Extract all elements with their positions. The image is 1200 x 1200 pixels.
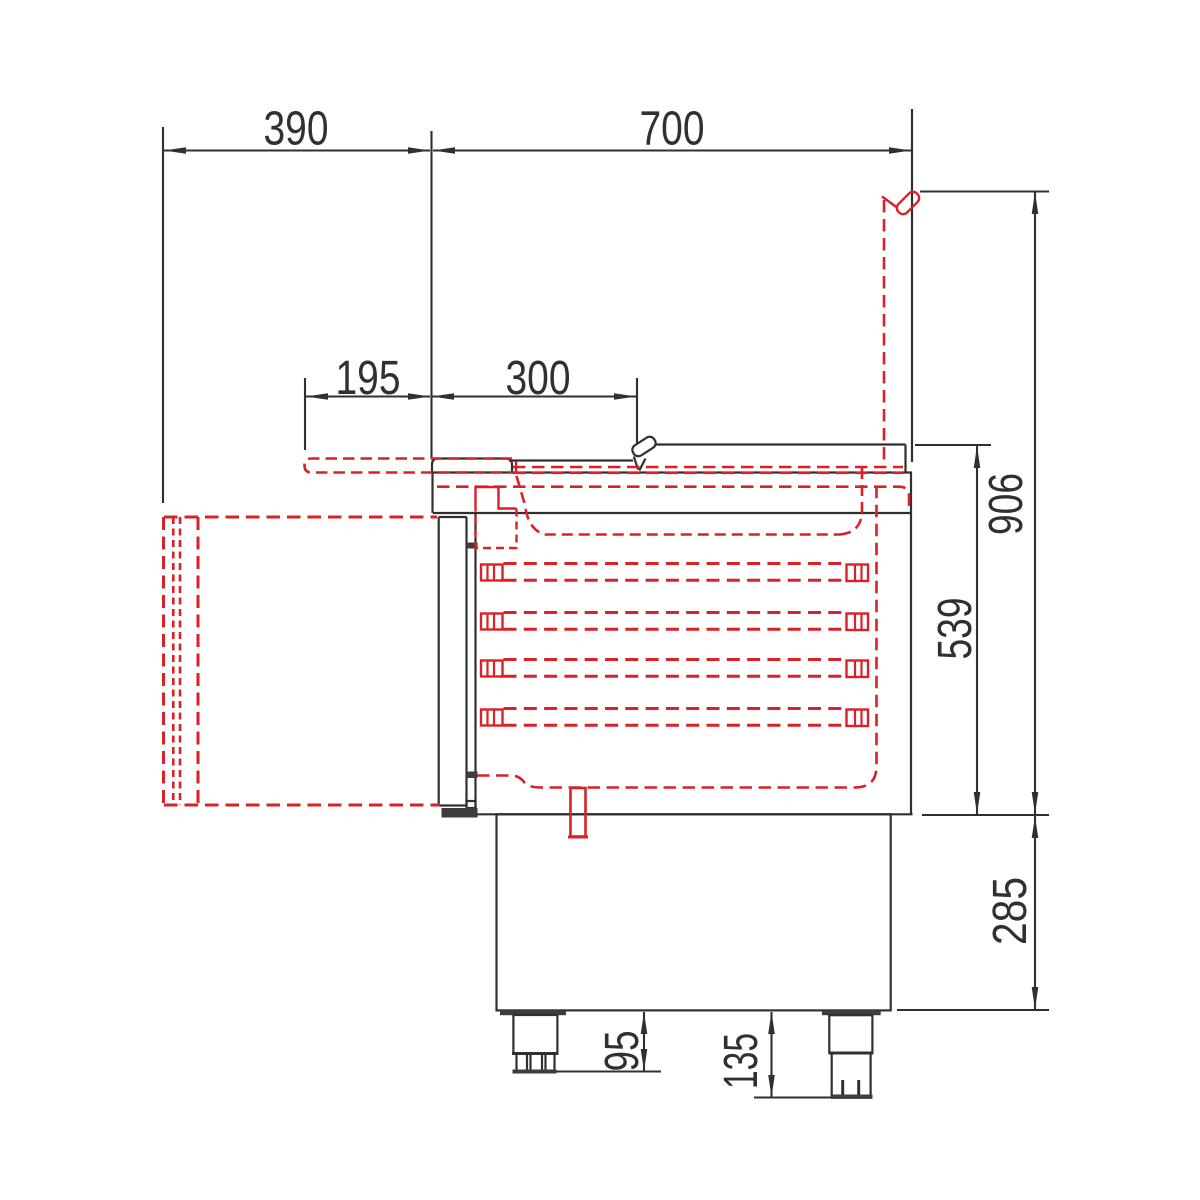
svg-text:390: 390 (264, 103, 329, 156)
svg-text:700: 700 (640, 103, 705, 156)
svg-text:300: 300 (506, 352, 571, 405)
svg-text:135: 135 (715, 1033, 768, 1089)
svg-text:906: 906 (980, 473, 1033, 535)
svg-text:539: 539 (929, 598, 982, 660)
svg-text:95: 95 (596, 1031, 649, 1072)
svg-text:195: 195 (336, 352, 401, 405)
svg-text:285: 285 (984, 877, 1037, 945)
